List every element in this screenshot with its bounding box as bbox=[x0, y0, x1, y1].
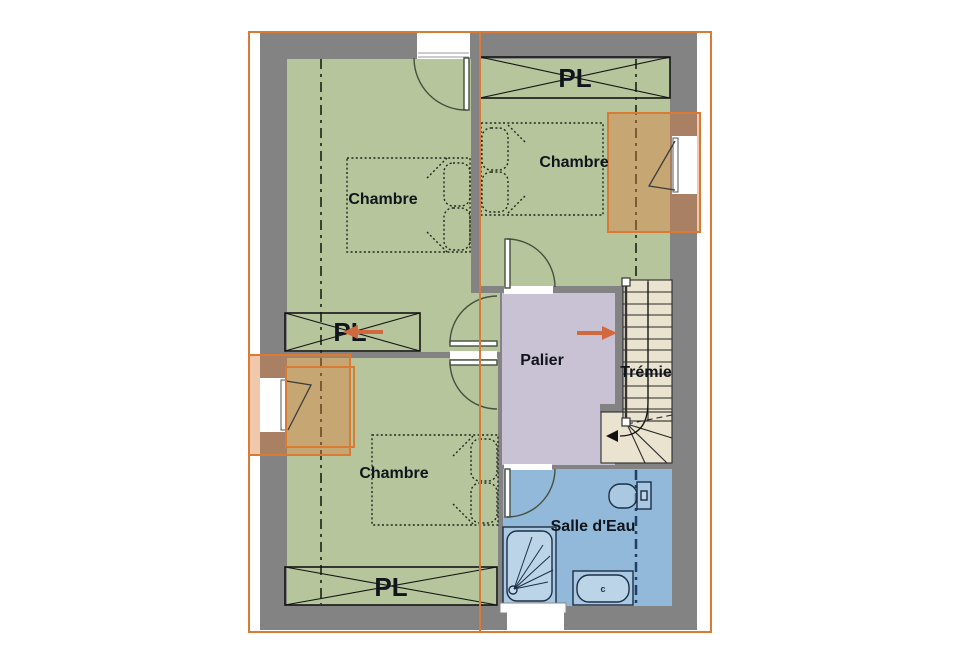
floor-plan: PL PL PL bbox=[0, 0, 960, 664]
room-label-tremie: Trémie bbox=[620, 364, 672, 381]
bottom-window bbox=[500, 603, 566, 630]
sink-icon: c bbox=[573, 571, 633, 605]
wall-stub bbox=[600, 404, 623, 412]
room-label-chambre1: Chambre bbox=[348, 191, 417, 208]
room-palier bbox=[502, 293, 615, 465]
bedroom-doors-opening bbox=[450, 351, 497, 359]
room-label-chambre3: Chambre bbox=[359, 465, 428, 482]
room-label-chambre2: Chambre bbox=[539, 154, 608, 171]
closet-top-label: PL bbox=[558, 63, 591, 93]
bathroom-door-opening bbox=[504, 464, 552, 470]
top-door-opening bbox=[417, 33, 470, 59]
chambre2-door-opening bbox=[504, 286, 553, 294]
room-label-salle-deau: Salle d'Eau bbox=[551, 518, 636, 535]
room-label-palier: Palier bbox=[520, 352, 564, 369]
closet-bottom-label: PL bbox=[374, 572, 407, 602]
sink-mark: c bbox=[600, 584, 605, 594]
right-window-highlight bbox=[608, 113, 700, 232]
toilet-icon bbox=[609, 482, 651, 509]
floor-plan-page: PL PL PL bbox=[0, 0, 960, 664]
left-window-highlight bbox=[249, 355, 354, 455]
shower-icon bbox=[503, 527, 556, 605]
